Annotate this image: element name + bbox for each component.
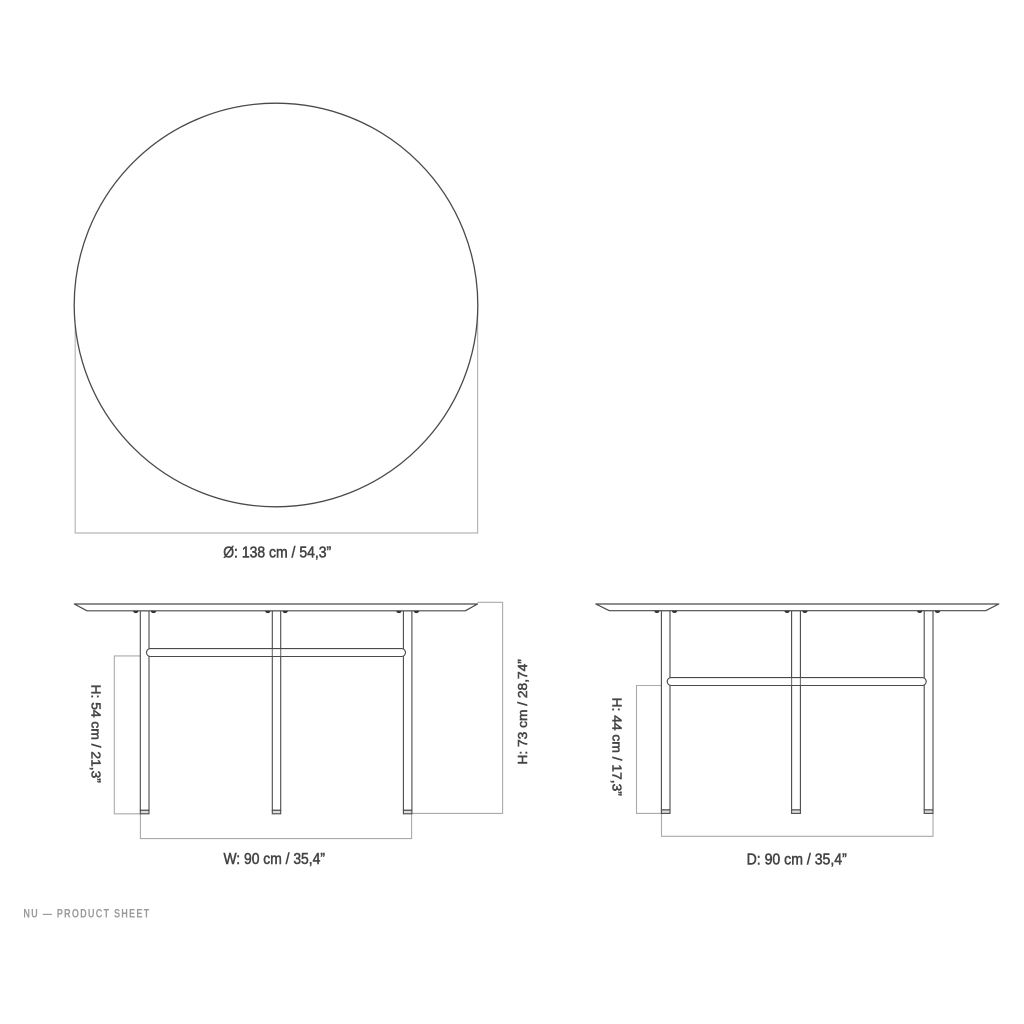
svg-text:H: 44 cm / 17,3”: H: 44 cm / 17,3” bbox=[610, 698, 625, 796]
svg-text:H: 54 cm / 21,3”: H: 54 cm / 21,3” bbox=[89, 685, 104, 783]
svg-text:NU — PRODUCT SHEET: NU — PRODUCT SHEET bbox=[23, 909, 150, 921]
svg-text:Ø: 138 cm / 54,3”: Ø: 138 cm / 54,3” bbox=[223, 545, 331, 562]
svg-text:W: 90 cm / 35,4”: W: 90 cm / 35,4” bbox=[223, 851, 325, 868]
svg-text:D: 90 cm / 35,4”: D: 90 cm / 35,4” bbox=[747, 851, 847, 868]
svg-text:H: 73 cm / 28,74”: H: 73 cm / 28,74” bbox=[515, 659, 530, 765]
